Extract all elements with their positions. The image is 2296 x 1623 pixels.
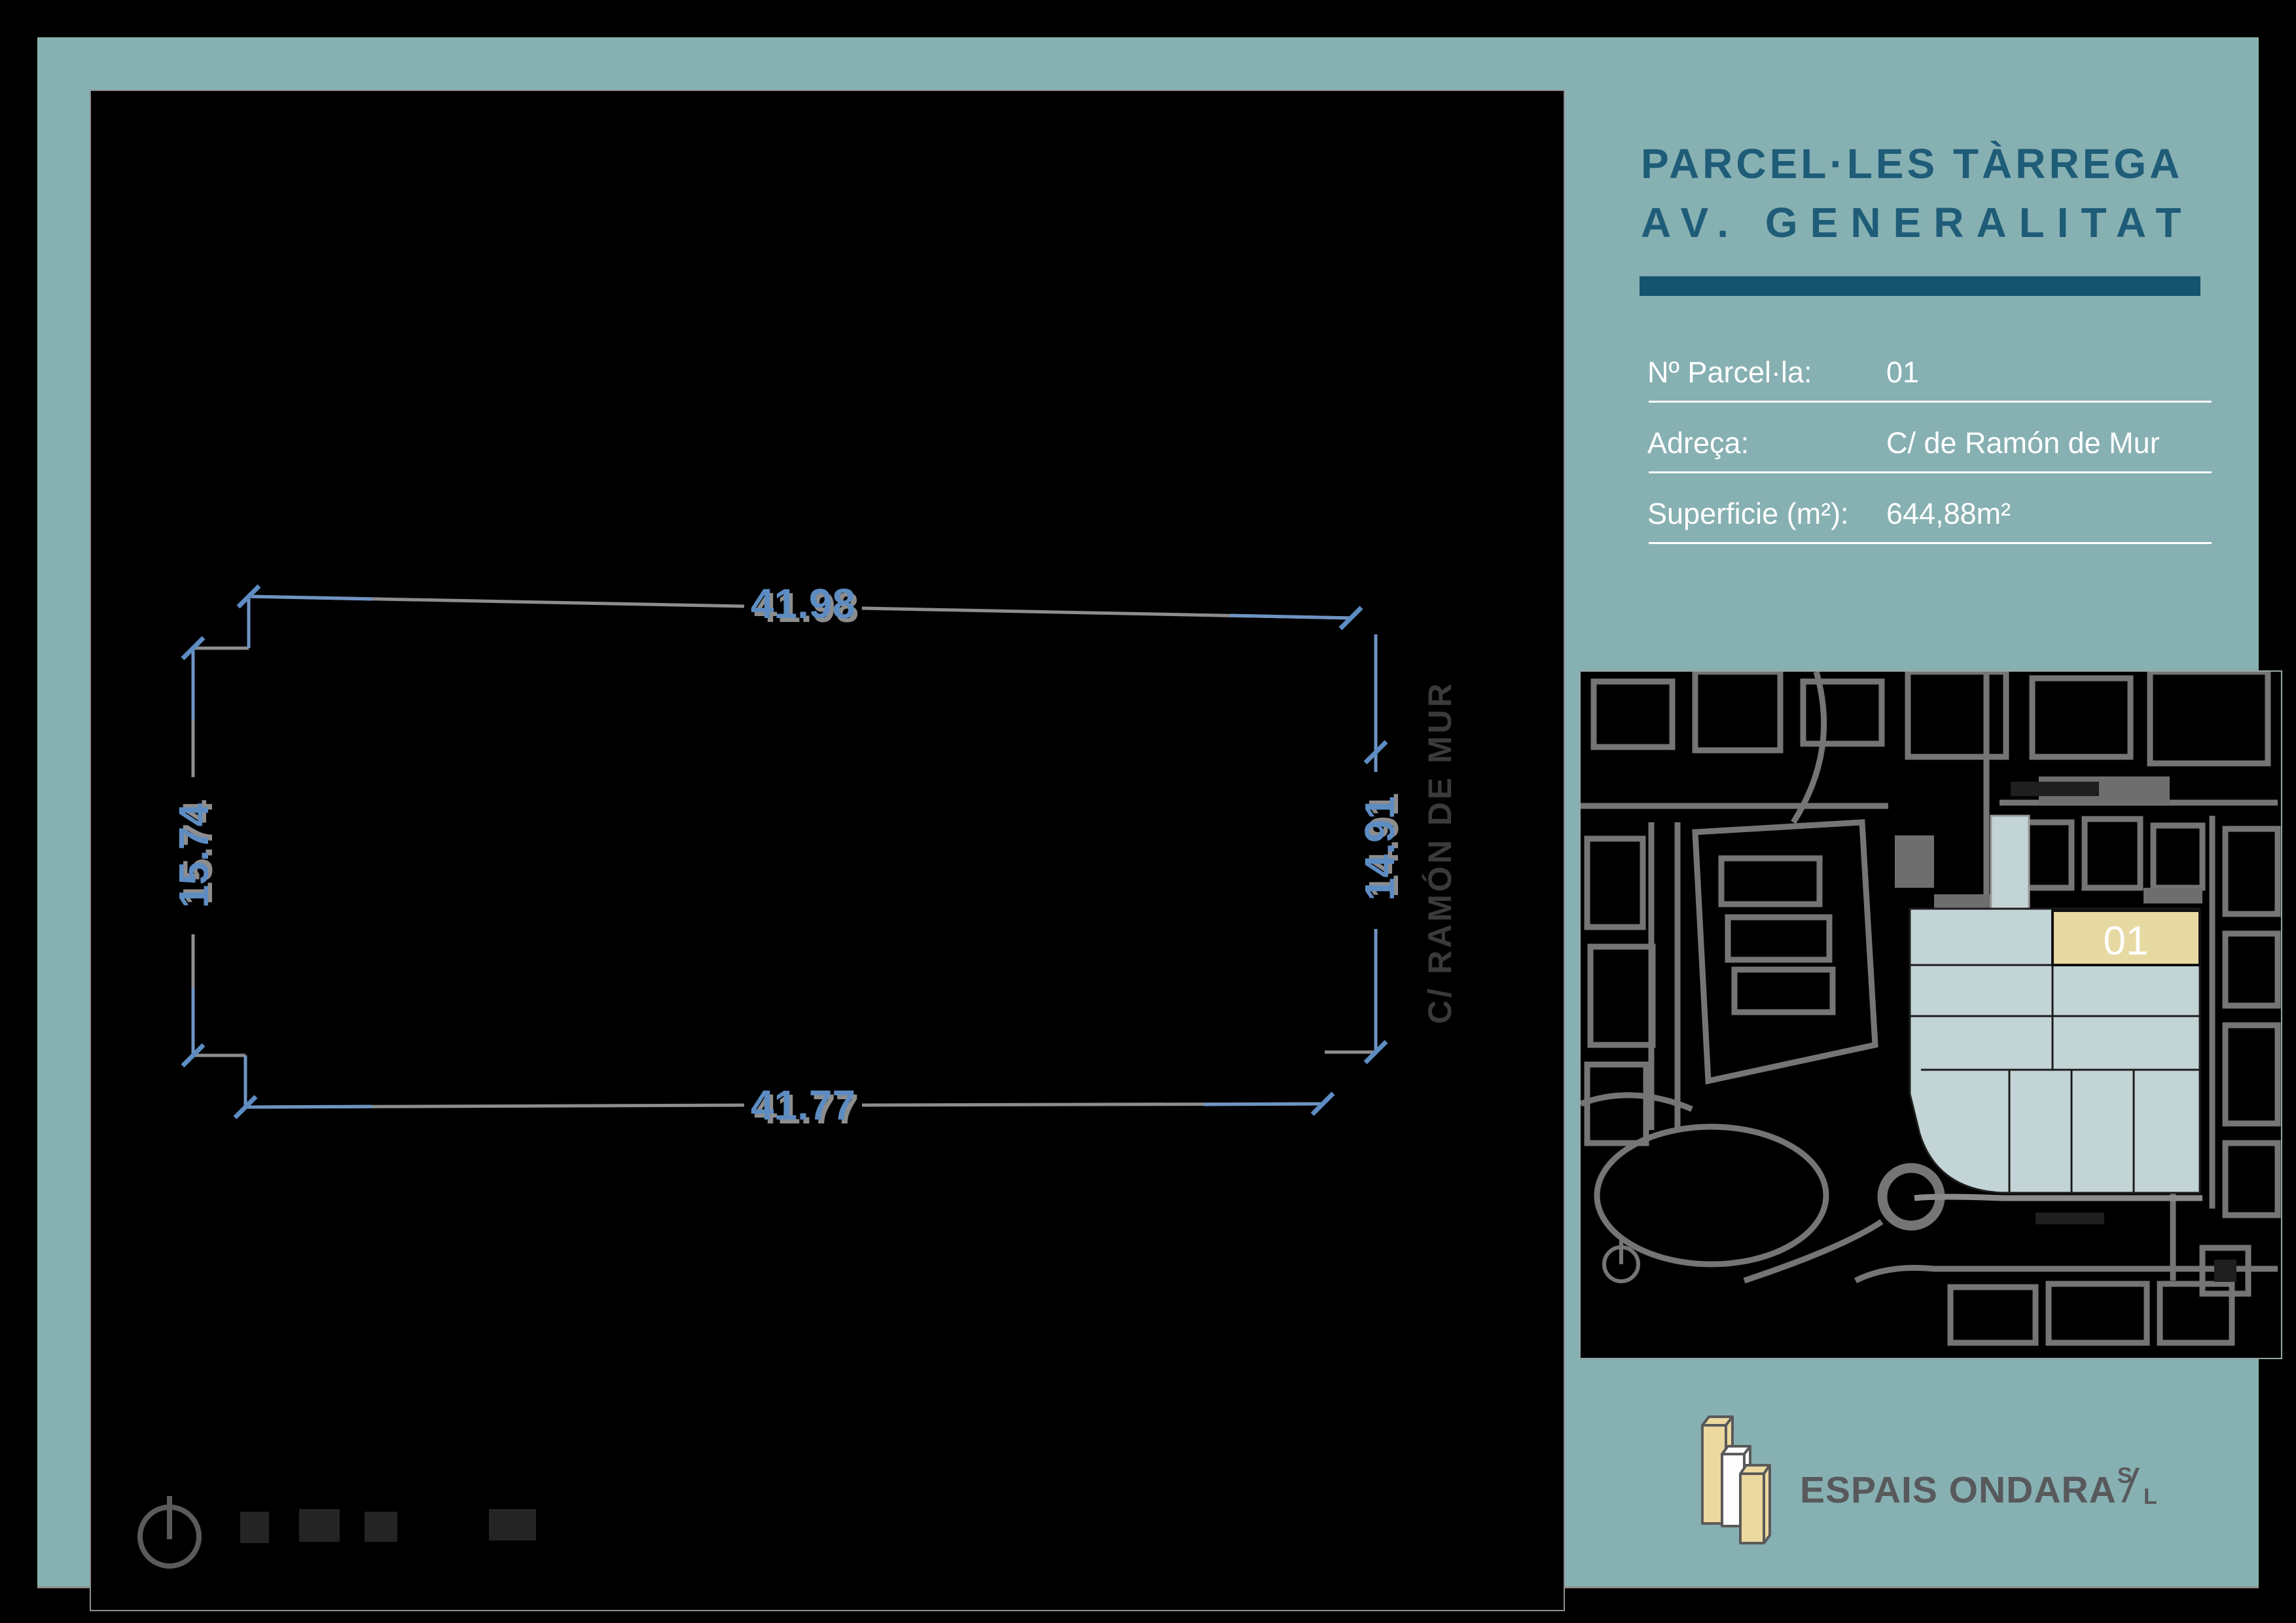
field-divider: [1649, 471, 2212, 473]
field-label-address: Adreça:: [1647, 426, 1749, 460]
field-label-surface: Superficie (m²):: [1647, 497, 1849, 531]
scale-marks: [240, 1509, 536, 1543]
dimension-right: 14.91: [1355, 796, 1404, 901]
parcel-drawing-panel: 41.98 41.77 15.74 14.91 C/ RAMÓN DE MUR: [90, 90, 1565, 1611]
espais-ondara-logo-text: ESPAIS ONDARA: [1800, 1468, 2117, 1512]
logo-suffix-l: L: [2144, 1484, 2157, 1510]
location-map-inset: 01: [1579, 670, 2282, 1359]
teal-sheet: 41.98 41.77 15.74 14.91 C/ RAMÓN DE MUR …: [37, 37, 2259, 1588]
logo-sl-suffix: S / L: [2117, 1463, 2163, 1516]
street-label: C/ RAMÓN DE MUR: [1421, 681, 1459, 1024]
title-underline-bar: [1640, 276, 2200, 296]
parcel-sheet-page: 41.98 41.77 15.74 14.91 C/ RAMÓN DE MUR …: [0, 0, 2296, 1623]
field-divider: [1649, 542, 2212, 544]
page-title-line2: AV. GENERALITAT: [1641, 193, 2193, 252]
field-label-parcel-number: Nº Parcel·la:: [1647, 356, 1812, 390]
dimension-bottom: 41.77: [751, 1081, 855, 1129]
parcel-highlight-label: 01: [2104, 919, 2149, 964]
dimension-ticks: [183, 586, 1386, 1118]
espais-ondara-logo-icon: [1698, 1412, 1787, 1546]
extension-lines: [193, 596, 1376, 1107]
dimension-lines: [193, 596, 1376, 1107]
field-divider: [1649, 401, 2212, 403]
dimension-lines-graphic: [91, 91, 1564, 1610]
field-value-address: C/ de Ramón de Mur: [1886, 426, 2160, 460]
dimension-top: 41.98: [751, 579, 855, 628]
field-value-surface: 644,88m²: [1886, 497, 2011, 531]
north-arrow-icon: [140, 1496, 199, 1566]
field-value-parcel-number: 01: [1886, 356, 1919, 390]
page-title-line1: PARCEL·LES TÀRREGA: [1641, 134, 2193, 193]
parcel-block: 01: [1910, 816, 2202, 1198]
map-graphic: 01: [1581, 672, 2281, 1358]
dimension-left: 15.74: [170, 803, 218, 908]
page-title: PARCEL·LES TÀRREGA AV. GENERALITAT: [1641, 134, 2193, 252]
